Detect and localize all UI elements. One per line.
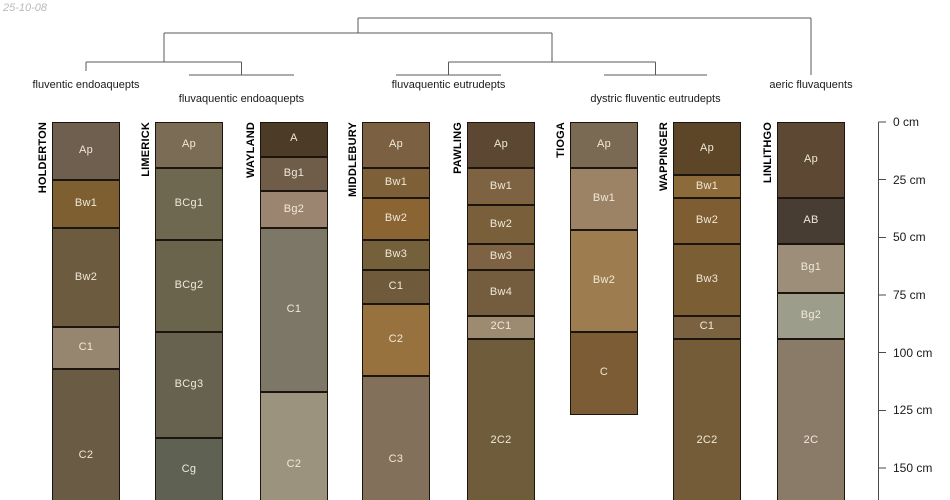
series-title-wayland: WAYLAND [244,122,258,178]
horizon-c2: C2 [362,304,430,376]
horizon-bg1: Bg1 [260,157,328,192]
horizon-bw2: Bw2 [673,198,741,244]
horizon-label: Bw1 [468,180,534,192]
horizon-bw3: Bw3 [467,244,535,269]
depth-axis-tick-label: 75 cm [893,288,926,302]
horizon-bw2: Bw2 [570,230,638,331]
horizon-c1: C1 [673,316,741,339]
horizon-bw1: Bw1 [570,168,638,230]
horizon-bw3: Bw3 [673,244,741,316]
soil-profile-dendrogram-chart: 25-10-08 fluventic endoaqueptsfluvaquent… [0,0,950,500]
profile-column-middlebury: ApBw1Bw2Bw3C1C2C3 [362,122,430,500]
profile-column-limerick: ApBCg1BCg2BCg3Cg [155,122,223,500]
horizon-bcg2: BCg2 [155,240,223,332]
horizon-label: BCg2 [156,279,222,291]
horizon-label: BCg1 [156,197,222,209]
horizon-label: Cg [156,463,222,475]
depth-axis-tick-label: 50 cm [893,230,926,244]
horizon-bg2: Bg2 [260,191,328,228]
horizon-2c1: 2C1 [467,316,535,339]
horizon-label: Bw4 [468,286,534,298]
horizon-label: Bg1 [778,261,844,273]
horizon-bcg3: BCg3 [155,332,223,438]
horizon-ap: Ap [52,122,120,180]
horizon-label: Ap [468,138,534,150]
horizon-label: Bw2 [363,212,429,224]
horizon-bw3: Bw3 [362,240,430,270]
profile-column-wayland: ABg1Bg2C1C2 [260,122,328,500]
horizon-label: Bw1 [363,176,429,188]
dendrogram-group-label: fluventic endoaquepts [32,79,139,91]
horizon-label: Bw2 [53,271,119,283]
horizon-label: Bw1 [53,197,119,209]
horizon-label: Bw2 [674,214,740,226]
profile-column-tioga: ApBw1Bw2C [570,122,638,416]
horizon-bcg1: BCg1 [155,168,223,240]
series-title-middlebury: MIDDLEBURY [346,122,360,197]
horizon-label: C2 [53,449,119,461]
horizon-2c2: 2C2 [673,339,741,500]
horizon-label: Bw2 [468,218,534,230]
horizon-c2: C2 [52,369,120,500]
horizon-label: 2C1 [468,320,534,332]
horizon-bw1: Bw1 [362,168,430,198]
profile-column-wappinger: ApBw1Bw2Bw3C12C2 [673,122,741,500]
horizon-label: C1 [261,303,327,315]
horizon-bw1: Bw1 [52,180,120,228]
horizon-ap: Ap [467,122,535,168]
horizon-bw2: Bw2 [467,205,535,244]
horizon-label: AB [778,214,844,226]
depth-axis-tick-label: 125 cm [893,403,932,417]
horizon-bg2: Bg2 [777,293,845,339]
series-title-holderton: HOLDERTON [36,122,50,193]
series-title-pawling: PAWLING [451,122,465,174]
horizon-label: Ap [363,138,429,150]
horizon-bw1: Bw1 [467,168,535,205]
horizon-ap: Ap [777,122,845,198]
horizon-label: Bg2 [261,203,327,215]
horizon-ap: Ap [155,122,223,168]
horizon-label: 2C2 [674,434,740,446]
series-title-limerick: LIMERICK [139,122,153,177]
horizon-label: C1 [674,320,740,332]
horizon-ap: Ap [570,122,638,168]
horizon-ap: Ap [362,122,430,168]
dendrogram-group-label: dystric fluventic eutrudepts [590,93,720,105]
horizon-label: 2C [778,434,844,446]
horizon-label: Bw1 [571,192,637,204]
horizon-label: A [261,132,327,144]
horizon-ap: Ap [673,122,741,175]
series-title-wappinger: WAPPINGER [657,122,671,191]
horizon-label: C1 [53,341,119,353]
depth-axis-tick-label: 25 cm [893,173,926,187]
horizon-label: Ap [778,153,844,165]
horizon-label: C [571,366,637,378]
horizon-label: C2 [261,458,327,470]
series-title-tioga: TIOGA [554,122,568,158]
horizon-a: A [260,122,328,157]
dendrogram-group-label: fluvaquentic endoaquepts [179,93,304,105]
horizon-c1: C1 [52,327,120,369]
horizon-label: Bw3 [363,248,429,260]
horizon-label: Bw3 [674,273,740,285]
horizon-label: Bw2 [571,274,637,286]
depth-axis-tick-label: 150 cm [893,461,932,475]
horizon-cg: Cg [155,438,223,500]
horizon-bw4: Bw4 [467,270,535,316]
horizon-label: Ap [53,144,119,156]
horizon-label: Ap [156,138,222,150]
horizon-label: C3 [363,453,429,465]
horizon-label: Ap [674,142,740,154]
horizon-label: Bw3 [468,250,534,262]
horizon-label: Bg1 [261,167,327,179]
timestamp: 25-10-08 [3,2,47,14]
horizon-label: Bw1 [674,180,740,192]
horizon-c1: C1 [362,270,430,305]
horizon-c1: C1 [260,228,328,392]
horizon-label: BCg3 [156,378,222,390]
profile-column-linlithgo: ApABBg1Bg22C [777,122,845,500]
horizon-2c2: 2C2 [467,339,535,500]
horizon-c: C [570,332,638,415]
dendrogram-group-label: fluvaquentic eutrudepts [392,79,506,91]
depth-axis-tick-label: 100 cm [893,346,932,360]
horizon-c3: C3 [362,376,430,500]
horizon-bw2: Bw2 [52,228,120,327]
horizon-label: Bg2 [778,309,844,321]
horizon-label: C2 [363,333,429,345]
horizon-bw2: Bw2 [362,198,430,240]
horizon-bw1: Bw1 [673,175,741,198]
series-title-linlithgo: LINLITHGO [761,122,775,183]
horizon-ab: AB [777,198,845,244]
profile-column-holderton: ApBw1Bw2C1C2 [52,122,120,500]
horizon-c2: C2 [260,392,328,500]
dendrogram-group-label: aeric fluvaquents [769,79,852,91]
depth-axis-tick-label: 0 cm [893,115,919,129]
horizon-2c: 2C [777,339,845,500]
horizon-label: C1 [363,280,429,292]
profile-column-pawling: ApBw1Bw2Bw3Bw42C12C2 [467,122,535,500]
horizon-label: Ap [571,138,637,150]
horizon-bg1: Bg1 [777,244,845,292]
horizon-label: 2C2 [468,434,534,446]
